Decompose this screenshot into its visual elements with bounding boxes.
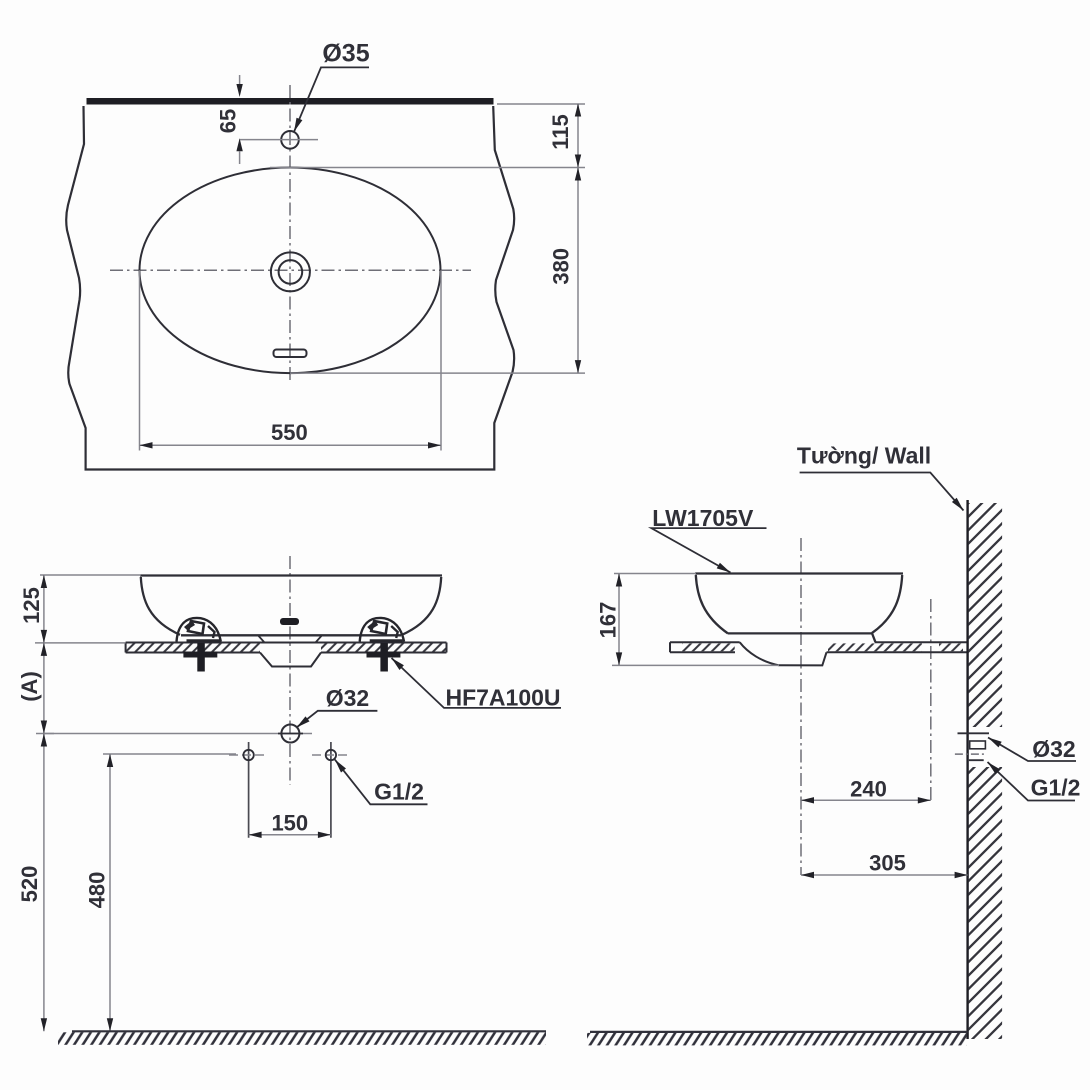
svg-text:305: 305 [869, 851, 906, 876]
svg-text:Ø32: Ø32 [1032, 736, 1075, 762]
svg-text:167: 167 [596, 602, 621, 639]
svg-text:HF7A100U: HF7A100U [445, 685, 560, 711]
svg-text:(A): (A) [17, 671, 42, 702]
svg-text:125: 125 [19, 587, 44, 624]
svg-text:150: 150 [271, 811, 308, 836]
svg-text:Ø32: Ø32 [326, 685, 369, 711]
svg-text:LW1705V: LW1705V [652, 505, 754, 531]
svg-text:115: 115 [548, 114, 573, 150]
svg-text:G1/2: G1/2 [374, 778, 424, 804]
svg-text:380: 380 [549, 248, 574, 285]
svg-text:520: 520 [17, 866, 42, 903]
svg-text:65: 65 [216, 109, 241, 133]
svg-text:480: 480 [85, 872, 110, 909]
svg-text:Tường/ Wall: Tường/ Wall [797, 443, 931, 469]
svg-text:G1/2: G1/2 [1031, 775, 1081, 801]
svg-text:240: 240 [850, 777, 887, 802]
svg-text:550: 550 [271, 420, 308, 445]
svg-text:Ø35: Ø35 [322, 40, 369, 68]
